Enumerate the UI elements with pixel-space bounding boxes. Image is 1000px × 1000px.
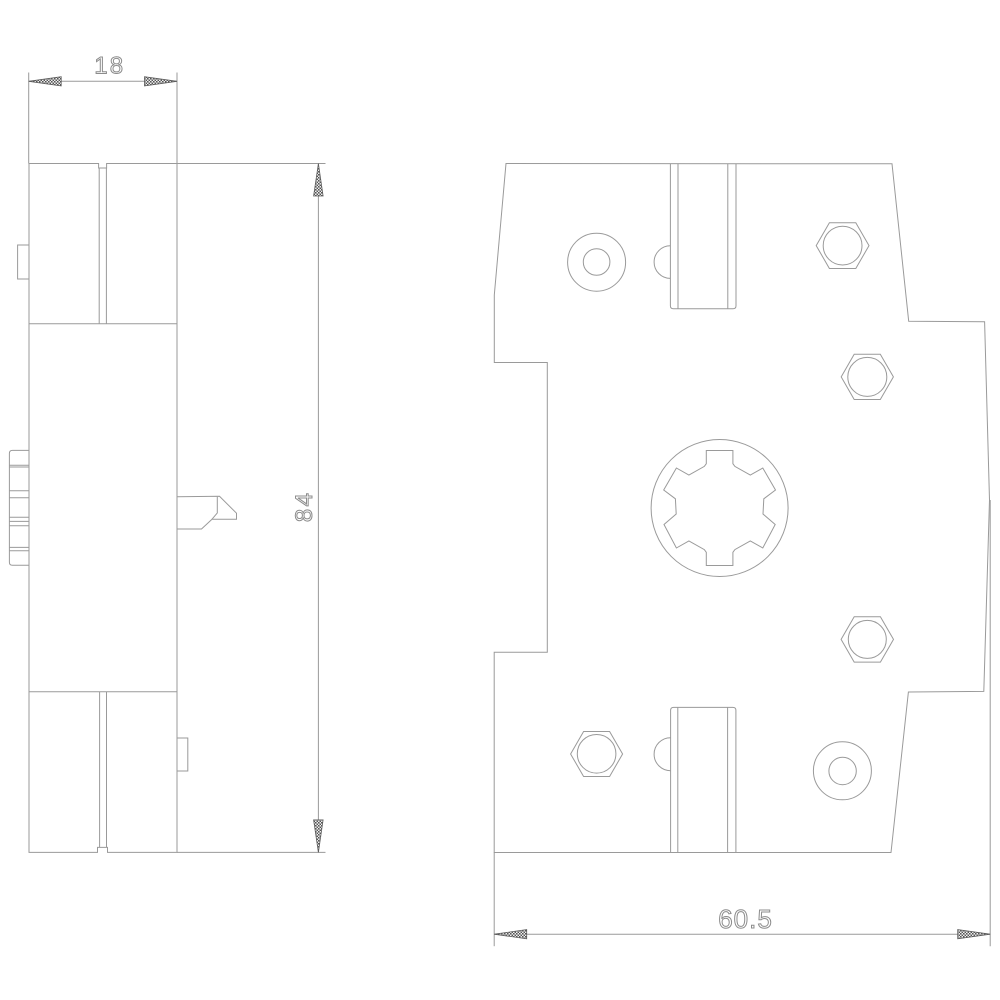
svg-text:18: 18: [94, 53, 125, 80]
svg-text:84: 84: [291, 491, 318, 523]
svg-text:60.5: 60.5: [718, 904, 773, 934]
